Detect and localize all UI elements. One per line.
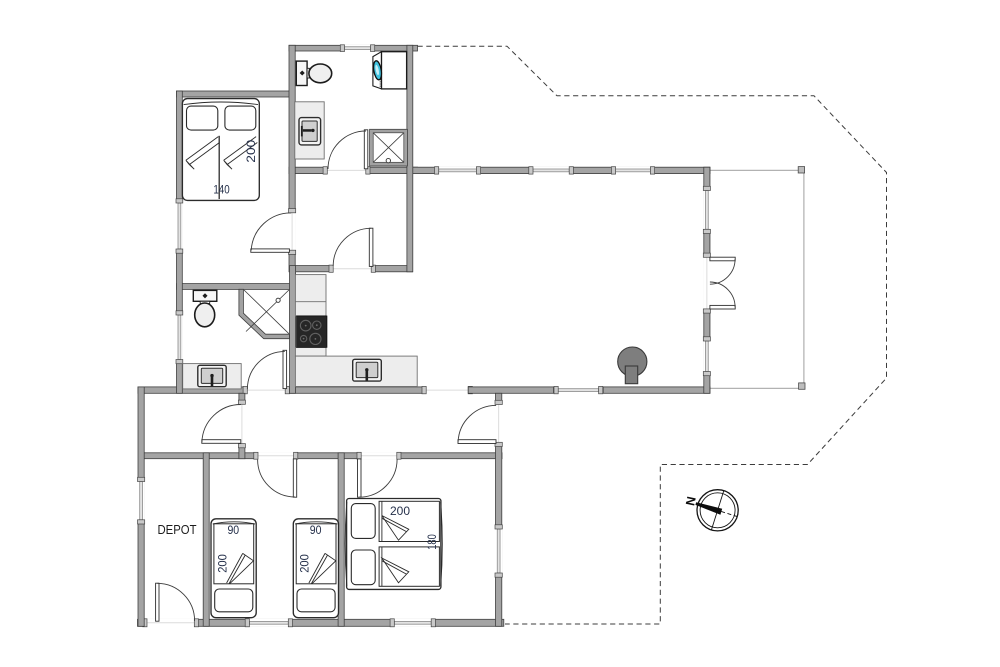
svg-text:200: 200 [244,139,258,162]
svg-text:180: 180 [425,534,439,550]
svg-text:140: 140 [213,182,230,196]
svg-text:90: 90 [227,523,239,537]
svg-text:90: 90 [310,523,322,537]
svg-text:DEPOT: DEPOT [158,522,197,537]
svg-text:200: 200 [298,554,312,573]
svg-text:200: 200 [215,554,229,573]
svg-text:200: 200 [390,504,410,518]
